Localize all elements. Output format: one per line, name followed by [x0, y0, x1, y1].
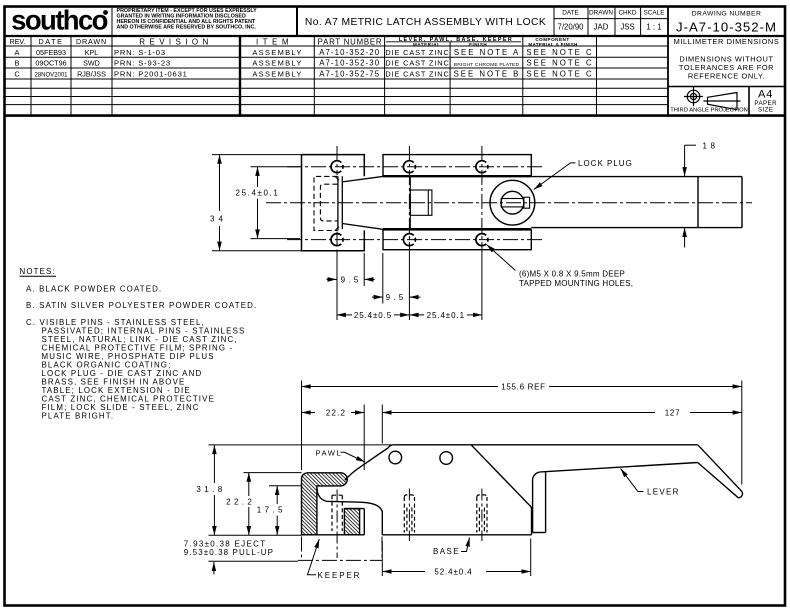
- svg-text:TAPPED MOUNTING HOLES,: TAPPED MOUNTING HOLES,: [519, 279, 633, 288]
- svg-text:CHKD: CHKD: [618, 10, 636, 17]
- svg-text:05FEB93: 05FEB93: [36, 48, 66, 57]
- svg-text:31.8: 31.8: [196, 485, 225, 494]
- svg-text:NOTES:: NOTES:: [20, 267, 56, 276]
- svg-text:C: C: [14, 70, 20, 79]
- svg-text:25.4±0.1: 25.4±0.1: [236, 189, 280, 198]
- svg-text:7/20/90: 7/20/90: [557, 23, 584, 32]
- svg-text:SIZE: SIZE: [758, 106, 773, 113]
- svg-text:REVISION: REVISION: [139, 38, 212, 47]
- svg-text:9.53±0.38 PULL-UP: 9.53±0.38 PULL-UP: [184, 548, 274, 557]
- svg-text:FINISH: FINISH: [469, 42, 487, 47]
- svg-text:southco: southco: [11, 5, 108, 36]
- svg-text:A. BLACK POWDER COATED.: A. BLACK POWDER COATED.: [26, 285, 162, 294]
- svg-text:22.2: 22.2: [226, 497, 255, 506]
- svg-text:28NOV2001: 28NOV2001: [34, 73, 68, 79]
- svg-text:1 : 1: 1 : 1: [646, 23, 661, 32]
- svg-text:SWD: SWD: [83, 59, 100, 68]
- svg-text:DRAWN: DRAWN: [76, 37, 107, 46]
- svg-text:J-A7-10-352-M: J-A7-10-352-M: [676, 20, 777, 35]
- svg-text:(6)M5 X 0.8 X 9.5mm DEEP: (6)M5 X 0.8 X 9.5mm DEEP: [519, 270, 625, 279]
- svg-text:9.5: 9.5: [386, 293, 407, 302]
- svg-text:DRAWING NUMBER: DRAWING NUMBER: [692, 11, 762, 18]
- svg-text:DATE: DATE: [38, 37, 63, 46]
- svg-text:B: B: [15, 59, 20, 68]
- svg-text:THIRD ANGLE PROJECTION: THIRD ANGLE PROJECTION: [670, 108, 748, 114]
- svg-text:09OCT96: 09OCT96: [35, 59, 66, 68]
- svg-text:SEE NOTE C: SEE NOTE C: [526, 59, 593, 68]
- svg-text:DIE CAST ZINC: DIE CAST ZINC: [385, 59, 449, 68]
- svg-text:PART NUMBER: PART NUMBER: [318, 38, 383, 47]
- svg-text:REV.: REV.: [9, 37, 25, 46]
- svg-text:BLACK ORGANIC COATING;: BLACK ORGANIC COATING;: [42, 360, 172, 369]
- svg-text:A7-10-352-20: A7-10-352-20: [319, 48, 380, 57]
- svg-text:A4: A4: [758, 89, 773, 101]
- svg-text:MATERIAL: MATERIAL: [413, 42, 440, 47]
- svg-text:DRAWN: DRAWN: [589, 10, 613, 17]
- svg-text:SEE NOTE A: SEE NOTE A: [454, 48, 520, 57]
- svg-text:JSS: JSS: [620, 23, 634, 32]
- svg-text:MATERIAL & FINISH: MATERIAL & FINISH: [528, 42, 578, 47]
- svg-text:PRN: S-1-03: PRN: S-1-03: [114, 48, 166, 57]
- svg-text:BASE: BASE: [433, 547, 460, 556]
- svg-text:AND OTHERWISE ARE RESERVED BY: AND OTHERWISE ARE RESERVED BY SOUTHCO, I…: [117, 25, 257, 31]
- svg-text:SEE NOTE C: SEE NOTE C: [526, 48, 593, 57]
- svg-text:KEEPER: KEEPER: [318, 571, 362, 580]
- svg-text:9.5: 9.5: [341, 275, 362, 284]
- svg-text:LOCK PLUG: LOCK PLUG: [578, 159, 633, 168]
- svg-text:ASSEMBLY: ASSEMBLY: [252, 48, 302, 57]
- svg-text:B. SATIN SILVER POLYESTER POWD: B. SATIN SILVER POLYESTER POWDER COATED.: [26, 301, 257, 310]
- svg-text:SCALE: SCALE: [644, 10, 665, 17]
- svg-text:DIE CAST ZINC: DIE CAST ZINC: [385, 70, 449, 79]
- svg-text:155.6 REF: 155.6 REF: [501, 383, 546, 392]
- svg-text:17.5: 17.5: [257, 506, 286, 515]
- svg-text:52.4±0.4: 52.4±0.4: [434, 568, 472, 577]
- svg-text:18: 18: [703, 142, 719, 151]
- svg-text:SEE NOTE C: SEE NOTE C: [526, 70, 593, 79]
- svg-text:JAD: JAD: [594, 23, 609, 32]
- svg-text:MILLIMETER DIMENSIONS: MILLIMETER DIMENSIONS: [674, 37, 780, 46]
- svg-text:BRIGHT CHROME PLATED: BRIGHT CHROME PLATED: [454, 62, 520, 68]
- svg-text:A: A: [15, 48, 20, 57]
- svg-text:DATE: DATE: [562, 10, 579, 17]
- svg-text:LEVER: LEVER: [647, 487, 680, 496]
- svg-text:KPL: KPL: [85, 48, 99, 57]
- svg-text:34: 34: [210, 214, 227, 223]
- svg-text:ASSEMBLY: ASSEMBLY: [252, 70, 302, 79]
- svg-text:PAWL: PAWL: [316, 448, 343, 457]
- svg-text:22.2: 22.2: [326, 409, 346, 418]
- svg-text:PLATE BRIGHT.: PLATE BRIGHT.: [42, 411, 115, 420]
- svg-text:DIE CAST ZINC: DIE CAST ZINC: [385, 48, 449, 57]
- svg-text:No. A7 METRIC LATCH ASSEMBLY W: No. A7 METRIC LATCH ASSEMBLY WITH LOCK: [305, 17, 546, 28]
- svg-text:ITEM: ITEM: [256, 38, 293, 47]
- svg-text:25.4±0.1: 25.4±0.1: [427, 311, 465, 320]
- svg-text:SEE NOTE B: SEE NOTE B: [454, 70, 521, 79]
- svg-text:A7-10-352-30: A7-10-352-30: [319, 59, 380, 68]
- svg-text:127: 127: [665, 409, 680, 418]
- svg-text:A7-10-352-75: A7-10-352-75: [319, 70, 380, 79]
- svg-text:25.4±0.5: 25.4±0.5: [354, 311, 392, 320]
- svg-text:PRN: P2001-0631: PRN: P2001-0631: [114, 70, 188, 79]
- svg-text:RJB/JSS: RJB/JSS: [77, 70, 106, 79]
- svg-text:ASSEMBLY: ASSEMBLY: [252, 59, 302, 68]
- svg-text:REFERENCE ONLY.: REFERENCE ONLY.: [688, 72, 765, 81]
- svg-text:PRN: S-93-23: PRN: S-93-23: [114, 59, 171, 68]
